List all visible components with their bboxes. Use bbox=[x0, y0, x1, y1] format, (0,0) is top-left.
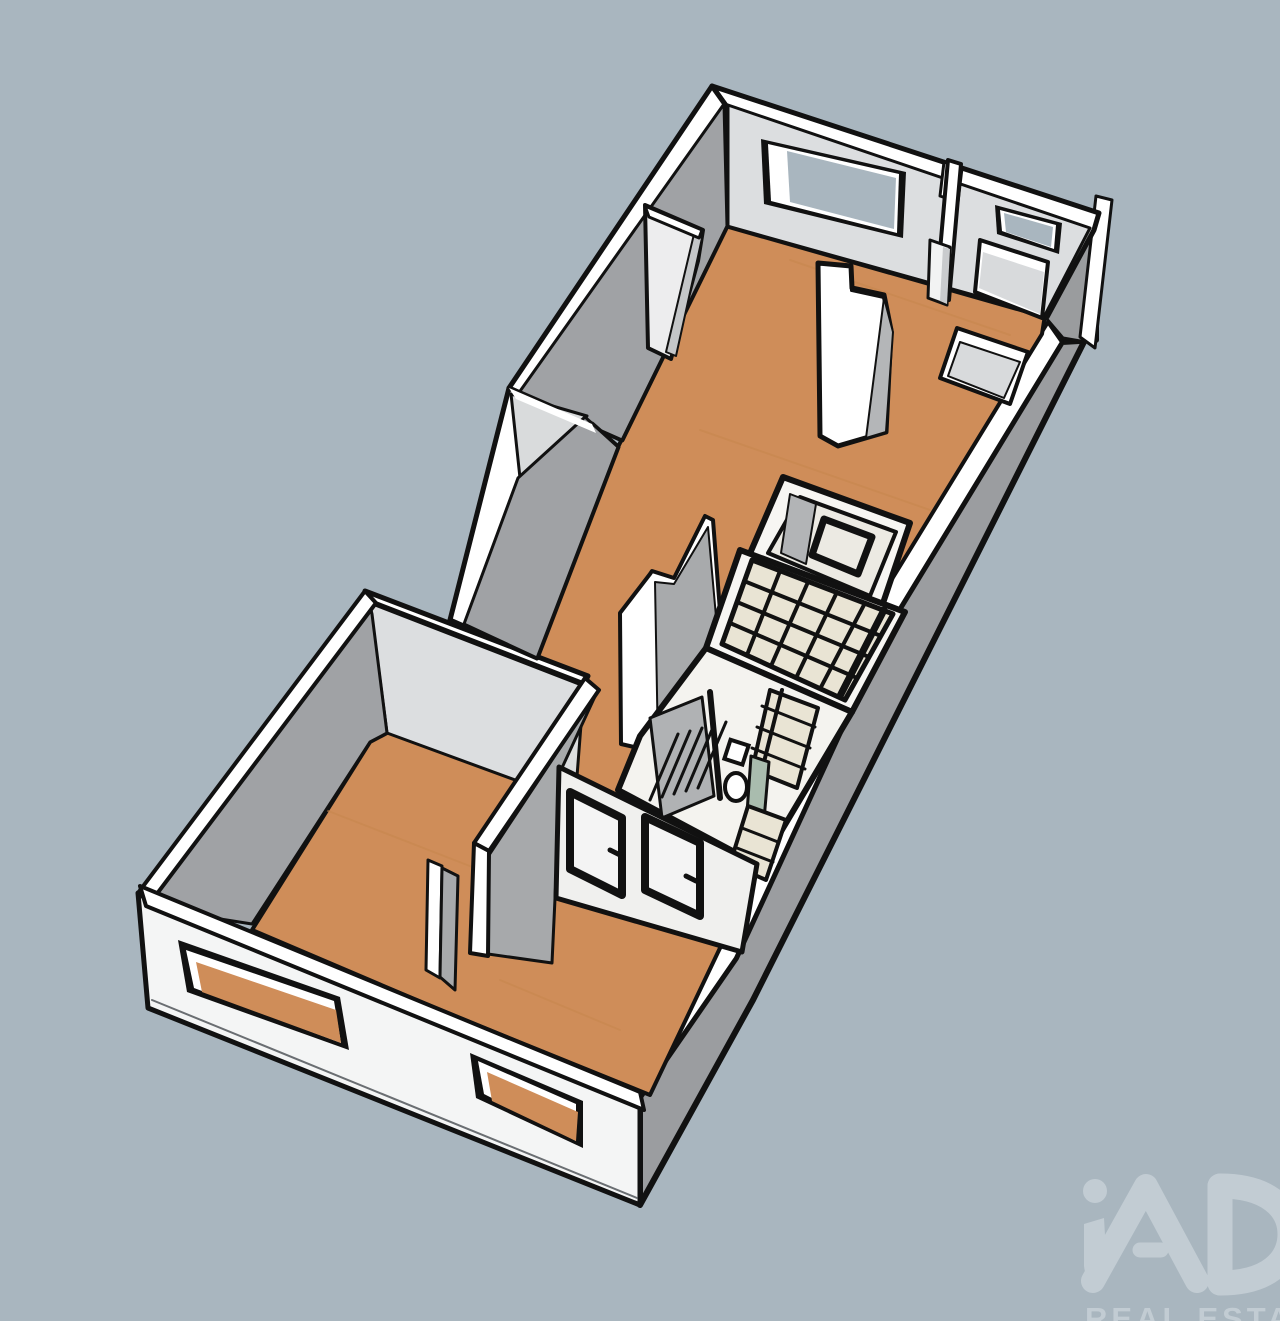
svg-text:REAL ESTATE: REAL ESTATE bbox=[1085, 1301, 1280, 1321]
